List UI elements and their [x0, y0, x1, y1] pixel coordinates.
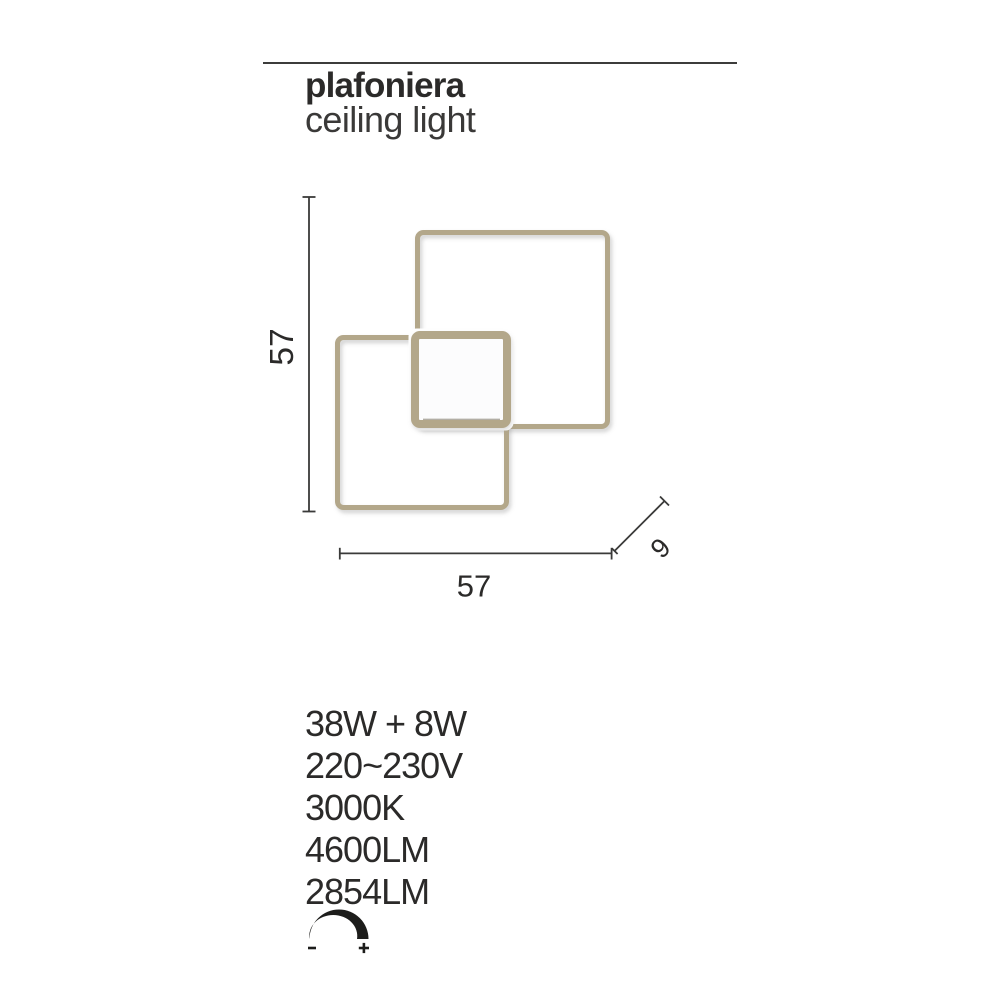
- svg-text:57: 57: [457, 569, 491, 604]
- svg-text:9: 9: [645, 532, 677, 564]
- svg-text:57: 57: [264, 328, 301, 365]
